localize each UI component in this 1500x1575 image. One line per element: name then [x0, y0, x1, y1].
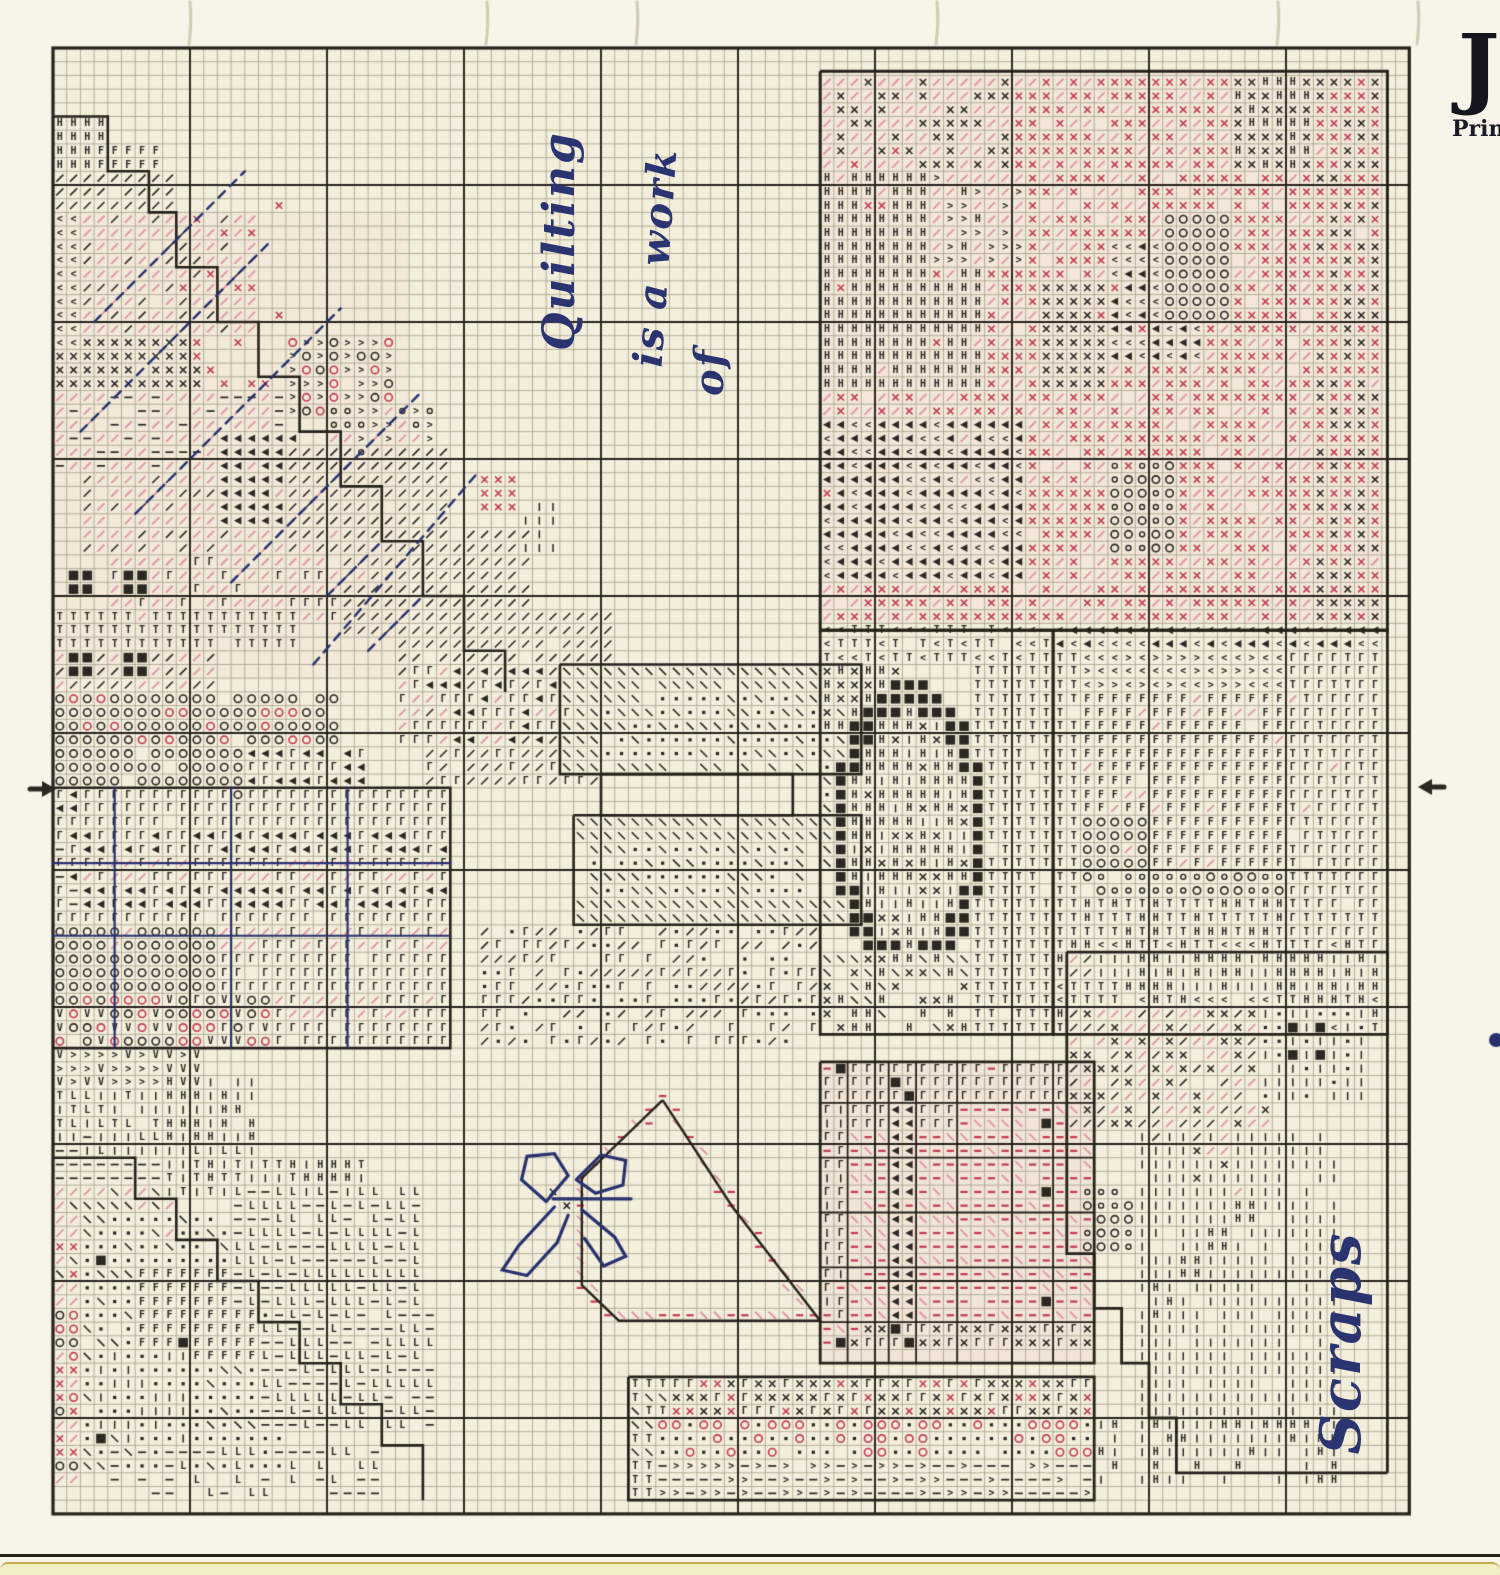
pattern-grid-canvas	[0, 0, 1500, 1575]
cross-stitch-chart-page: Quilting is a work of Scraps J Printe	[0, 0, 1500, 1575]
